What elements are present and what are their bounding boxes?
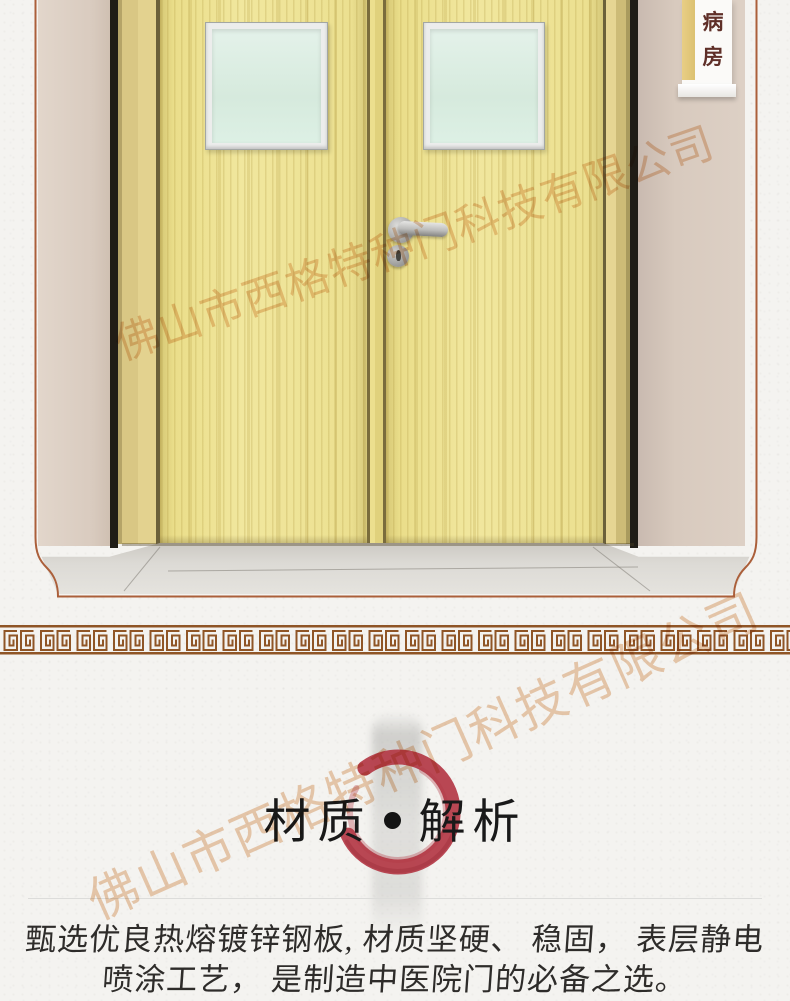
section-title: 材质 解析 xyxy=(0,790,790,844)
body-text-line-1: 甄选优良热熔镀锌钢板, 材质坚硬、 稳固， 表层静电 xyxy=(0,914,790,959)
body-text-line-2: 喷涂工艺， 是制造中医院门的必备之选。 xyxy=(0,954,790,999)
door-window-right xyxy=(423,22,545,150)
door-product-photo: 病 房 佛山市西格特种门科技有限公司 xyxy=(0,0,790,600)
door-window-left xyxy=(205,22,328,150)
ward-sign-char-2: 房 xyxy=(703,40,724,75)
door-handle-lever xyxy=(398,221,449,238)
door-reveal-gap-right xyxy=(630,0,638,548)
door-reveal-gap-left xyxy=(110,0,118,548)
section-title-right: 解析 xyxy=(419,783,527,852)
ward-sign-ledge xyxy=(678,84,736,97)
section-divider xyxy=(28,898,762,899)
floor-seam-lines xyxy=(38,543,753,594)
door-jamb-left xyxy=(118,0,160,544)
door-jamb-right xyxy=(603,0,630,544)
door-astragal xyxy=(367,0,386,543)
door-keyhole xyxy=(387,245,409,267)
wall-left xyxy=(38,0,110,546)
frosted-glass xyxy=(212,29,321,143)
meander-border-ornament xyxy=(0,625,790,655)
frosted-glass xyxy=(430,29,538,143)
title-separator-dot xyxy=(384,812,401,829)
ward-sign-char-1: 病 xyxy=(703,5,724,40)
ward-sign-stripe xyxy=(682,0,695,80)
section-title-left: 材质 xyxy=(264,783,372,852)
ward-sign-text: 病 房 xyxy=(698,5,728,75)
ward-sign: 病 房 xyxy=(682,0,732,84)
